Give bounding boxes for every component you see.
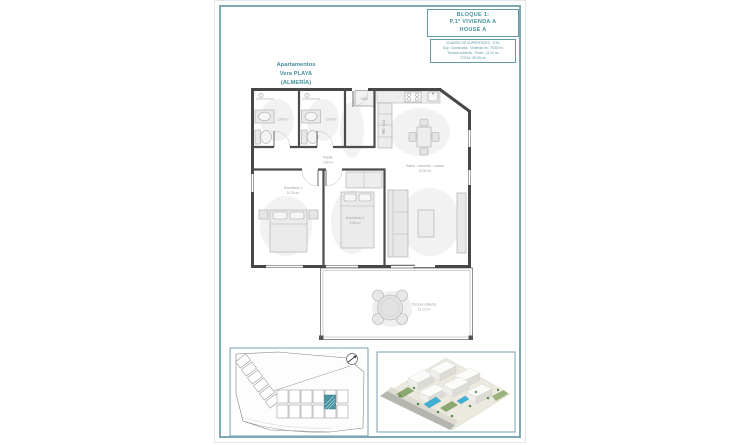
sliding-door-terrace [391,265,435,267]
site-highlighted-unit [325,395,336,409]
terrace: Terraza cubierta 13.12 m² [319,268,473,340]
bedroom2-door [326,170,342,186]
nightstand [259,210,268,219]
appliance-label: FRI · LVJ [382,120,386,134]
terrace-post-right [469,336,474,341]
terrace-label: Terraza cubierta [412,303,436,307]
stove [405,92,421,102]
bath1-area: 3.95 m² [278,118,289,122]
sofa [388,190,408,257]
kitchen-tall-units: FRI · LVJ [378,103,392,148]
hall-area: 2.85 m² [323,161,334,165]
north-arrow-icon [347,354,358,365]
window-right-living-2 [469,170,471,185]
sheet-canvas: BLOQUE 1: P.1ª VIVIENDA A HOUSE A CUADRO… [0,0,740,445]
bedroom2-furniture [341,172,382,248]
aerial-render [377,352,515,432]
terrace-post-left [319,336,324,341]
window-left-bedroom1 [252,174,254,192]
hall-label: Pasillo [323,156,333,160]
site-plan-map [230,348,368,436]
window-right-living-1 [469,130,471,147]
terrace-area: 13.12 m² [418,308,431,312]
nightstand [309,210,318,219]
window-bedroom2 [326,266,358,268]
laundry-closet: LVD [355,91,374,107]
bedroom1-label: Dormitorio 1 [284,186,303,190]
bedroom1-door [302,170,318,186]
bedroom1-area: 10.25 m² [287,191,300,195]
bath2-area: 3.60 m² [326,118,337,122]
tv-unit [457,193,466,253]
terrace-table-set [373,290,408,325]
floor-plan-drawing: Terraza cubierta 13.12 m² LVD [0,0,740,445]
window-bedroom1 [266,266,303,268]
living-area: 23.90 m² [419,169,432,173]
coffee-table [418,210,434,237]
kitchen-sink [428,92,438,101]
bedroom2-area: 9.85 m² [350,221,361,225]
living-label: Salón - comedor - cocina [406,164,444,168]
bedroom2-label: Dormitorio 2 [346,216,365,220]
